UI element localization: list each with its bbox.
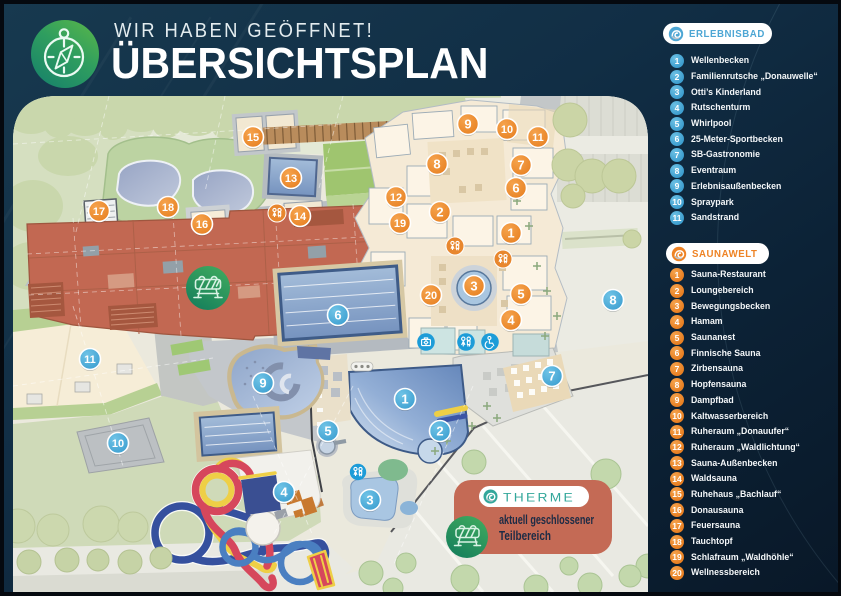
svg-text:8: 8 [433,157,440,172]
svg-text:4: 4 [280,485,288,500]
svg-text:10: 10 [112,438,124,450]
svg-text:2: 2 [436,424,443,439]
svg-text:20: 20 [425,290,437,302]
svg-text:1: 1 [507,226,514,241]
svg-text:4: 4 [507,313,515,328]
svg-text:THERME: THERME [503,491,575,505]
svg-text:19: 19 [394,218,406,230]
svg-text:2: 2 [436,205,443,220]
svg-text:18: 18 [162,202,174,214]
svg-text:12: 12 [390,192,402,204]
svg-text:14: 14 [294,211,307,223]
svg-text:1: 1 [401,392,408,407]
svg-text:Teilbereich: Teilbereich [499,529,551,543]
svg-text:16: 16 [196,219,208,231]
svg-text:7: 7 [517,158,524,173]
svg-text:10: 10 [501,124,513,136]
svg-text:11: 11 [84,354,96,366]
svg-text:15: 15 [247,132,259,144]
svg-text:13: 13 [285,173,297,185]
svg-text:5: 5 [517,287,524,302]
svg-text:9: 9 [464,117,471,132]
svg-text:3: 3 [366,493,373,508]
svg-text:6: 6 [334,308,341,323]
svg-text:7: 7 [548,369,555,384]
svg-text:9: 9 [259,376,266,391]
svg-text:11: 11 [532,132,544,144]
svg-text:3: 3 [470,279,477,294]
svg-text:8: 8 [609,293,616,308]
svg-text:17: 17 [93,206,105,218]
svg-text:aktuell geschlossener: aktuell geschlossener [499,513,594,527]
svg-text:5: 5 [324,424,331,439]
svg-text:6: 6 [512,181,519,196]
